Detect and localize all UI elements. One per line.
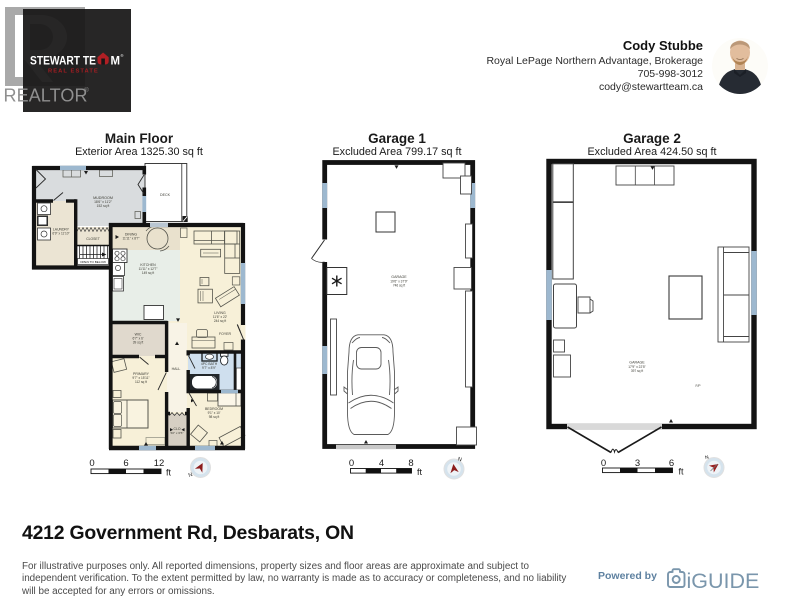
svg-text:98 sq ft: 98 sq ft <box>209 415 220 419</box>
svg-text:244 sq ft: 244 sq ft <box>214 319 226 323</box>
svg-text:6'9" x 11'10": 6'9" x 11'10" <box>52 232 69 236</box>
svg-text:®: ® <box>84 86 89 94</box>
svg-text:0: 0 <box>601 458 606 469</box>
svg-text:3: 3 <box>635 458 640 469</box>
svg-text:DECK: DECK <box>160 193 171 197</box>
svg-text:149 sq ft: 149 sq ft <box>142 271 154 275</box>
svg-text:F/P: F/P <box>696 384 701 388</box>
svg-text:REALTOR: REALTOR <box>4 86 88 106</box>
svg-text:6: 6 <box>669 458 674 469</box>
svg-text:9'7" x 8'9": 9'7" x 8'9" <box>202 366 216 370</box>
svg-text:ft: ft <box>166 468 172 478</box>
svg-text:152 sq ft: 152 sq ft <box>97 204 110 208</box>
svg-text:12: 12 <box>154 458 165 469</box>
svg-text:GARAGE: GARAGE <box>391 275 407 279</box>
svg-text:GARAGE: GARAGE <box>629 361 645 365</box>
svg-text:REAL ESTATE: REAL ESTATE <box>48 69 99 75</box>
svg-text:FOYER: FOYER <box>219 332 232 336</box>
svg-text:0: 0 <box>89 458 94 469</box>
svg-text:®: ® <box>121 53 124 58</box>
svg-text:397 sq ft: 397 sq ft <box>631 369 643 373</box>
svg-text:N: N <box>705 454 710 461</box>
svg-text:OPEN TO BELOW: OPEN TO BELOW <box>80 260 106 264</box>
svg-text:746 sq ft: 746 sq ft <box>393 284 405 288</box>
svg-text:8: 8 <box>408 458 413 469</box>
svg-text:11'11" x 8'7": 11'11" x 8'7" <box>122 237 139 241</box>
svg-text:50" x 6'5": 50" x 6'5" <box>171 431 184 435</box>
svg-text:M: M <box>111 54 121 68</box>
svg-text:39 sq ft: 39 sq ft <box>133 341 144 345</box>
svg-text:0: 0 <box>349 458 354 469</box>
svg-text:CLOSET: CLOSET <box>86 237 100 241</box>
svg-text:HALL: HALL <box>172 367 181 371</box>
svg-text:ft: ft <box>417 467 423 477</box>
svg-text:112 sq ft: 112 sq ft <box>135 380 147 384</box>
svg-text:6: 6 <box>123 458 128 469</box>
svg-text:iGUIDE: iGUIDE <box>687 569 760 592</box>
svg-text:ft: ft <box>679 467 685 477</box>
svg-text:4: 4 <box>379 458 384 469</box>
svg-text:STEWART TE: STEWART TE <box>30 54 96 68</box>
